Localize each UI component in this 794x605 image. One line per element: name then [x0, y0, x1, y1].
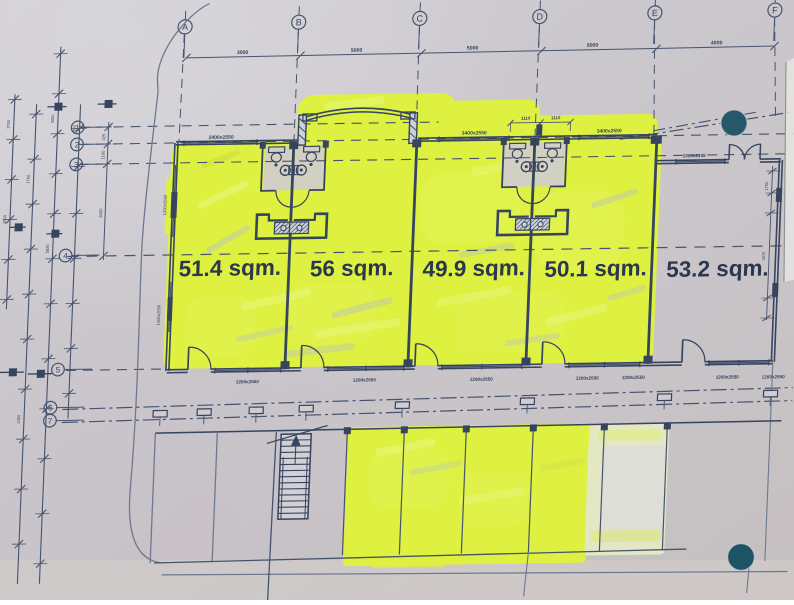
svg-text:1110: 1110 — [521, 116, 531, 121]
svg-text:1200x2550: 1200x2550 — [236, 379, 260, 384]
svg-text:1750: 1750 — [6, 119, 11, 129]
svg-text:4000: 4000 — [711, 40, 723, 46]
svg-text:D: D — [536, 12, 543, 22]
svg-text:1200x2550: 1200x2550 — [716, 374, 740, 379]
svg-text:56 sqm.: 56 sqm. — [309, 255, 394, 281]
svg-text:C: C — [416, 14, 423, 24]
svg-text:1200x2550: 1200x2550 — [162, 194, 168, 215]
svg-text:3050: 3050 — [50, 114, 55, 124]
svg-text:5000: 5000 — [467, 45, 479, 51]
svg-text:3075: 3075 — [761, 251, 766, 261]
svg-text:49.9 sqm.: 49.9 sqm. — [422, 255, 526, 282]
svg-text:3400x2550: 3400x2550 — [462, 130, 487, 136]
svg-text:5825: 5825 — [45, 244, 50, 254]
svg-text:1100: 1100 — [100, 150, 105, 160]
svg-text:2400x2550: 2400x2550 — [209, 135, 234, 141]
svg-text:1200x2550: 1200x2550 — [622, 375, 646, 380]
svg-text:5000: 5000 — [351, 48, 363, 54]
svg-text:1200x2550: 1200x2550 — [353, 377, 377, 382]
svg-text:51.4 sqm.: 51.4 sqm. — [178, 255, 282, 282]
svg-text:3000: 3000 — [98, 208, 103, 218]
svg-text:1200x2550: 1200x2550 — [156, 304, 162, 325]
svg-text:1750: 1750 — [764, 181, 769, 191]
svg-text:50.1 sqm.: 50.1 sqm. — [544, 255, 648, 282]
svg-text:5000: 5000 — [587, 43, 599, 49]
svg-text:3000: 3000 — [2, 214, 7, 224]
svg-text:1200x2550: 1200x2550 — [470, 377, 494, 382]
svg-text:3000: 3000 — [237, 50, 249, 56]
svg-text:53.2 sqm.: 53.2 sqm. — [666, 255, 770, 282]
svg-text:B: B — [296, 17, 302, 27]
svg-text:3400x2550: 3400x2550 — [597, 128, 622, 134]
svg-text:1200x2550: 1200x2550 — [762, 374, 786, 379]
svg-text:950: 950 — [71, 124, 76, 132]
svg-text:F: F — [772, 5, 778, 15]
svg-text:2350: 2350 — [16, 414, 21, 424]
svg-text:E: E — [652, 8, 658, 18]
svg-text:1750: 1750 — [25, 174, 30, 184]
svg-text:425: 425 — [101, 133, 106, 141]
svg-text:1300x2145: 1300x2145 — [683, 153, 707, 158]
svg-text:1110: 1110 — [551, 115, 561, 120]
svg-text:1200x2550: 1200x2550 — [576, 375, 600, 380]
